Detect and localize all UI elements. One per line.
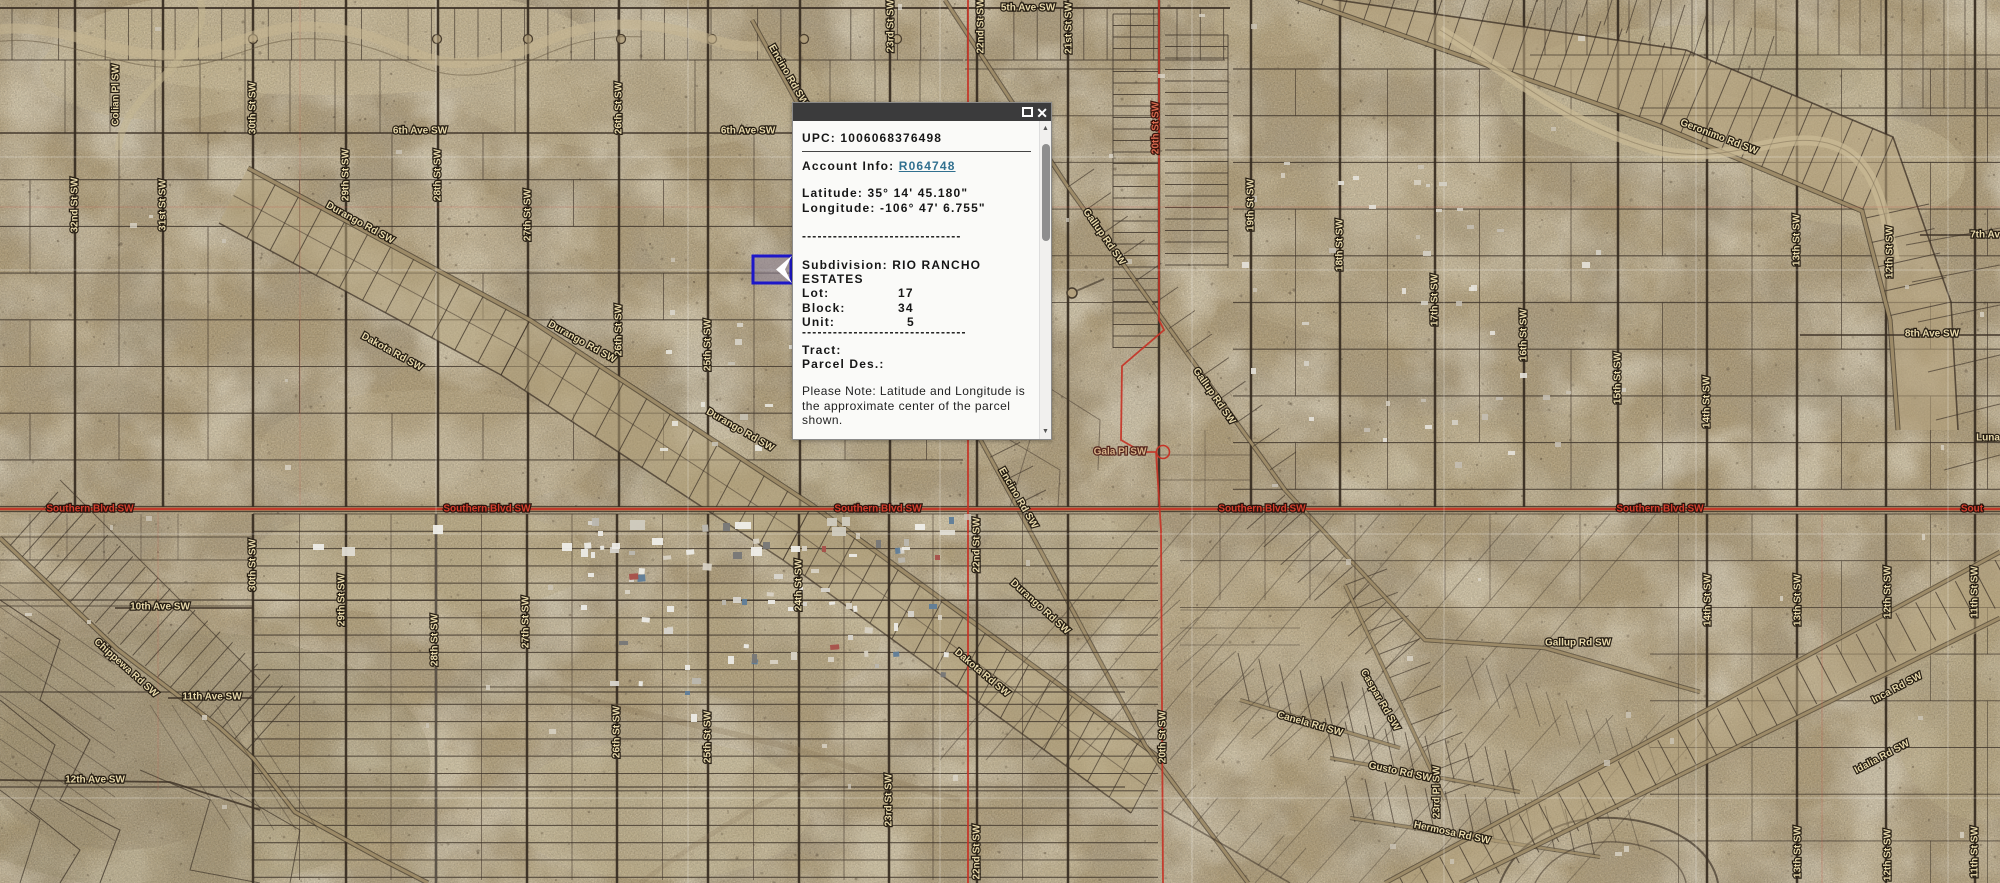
svg-text:8th Ave SW: 8th Ave SW bbox=[1905, 329, 1960, 340]
svg-text:18th St SW: 18th St SW bbox=[1335, 218, 1346, 271]
svg-text:29th St SW: 29th St SW bbox=[341, 148, 352, 201]
svg-text:28th St SW: 28th St SW bbox=[430, 613, 441, 666]
svg-text:26th St SW: 26th St SW bbox=[612, 705, 623, 758]
svg-text:27th St SW: 27th St SW bbox=[523, 188, 534, 241]
svg-text:29th St SW: 29th St SW bbox=[337, 573, 348, 626]
svg-text:6th Ave SW: 6th Ave SW bbox=[721, 126, 776, 137]
svg-text:32nd St SW: 32nd St SW bbox=[70, 177, 81, 233]
svg-text:Southern Blvd SW: Southern Blvd SW bbox=[1218, 504, 1306, 515]
svg-text:30th St SW: 30th St SW bbox=[248, 538, 259, 591]
svg-text:11th St SW: 11th St SW bbox=[1970, 826, 1981, 878]
svg-text:Southern Blvd SW: Southern Blvd SW bbox=[834, 504, 922, 515]
svg-text:30th St SW: 30th St SW bbox=[248, 81, 259, 134]
svg-text:26th St SW: 26th St SW bbox=[614, 81, 625, 134]
svg-text:6th Ave SW: 6th Ave SW bbox=[393, 126, 448, 137]
svg-text:12th St SW: 12th St SW bbox=[1883, 565, 1894, 618]
svg-text:20th St SW: 20th St SW bbox=[1151, 101, 1162, 154]
svg-text:22nd St SW: 22nd St SW bbox=[972, 824, 983, 880]
svg-text:15th St SW: 15th St SW bbox=[1613, 351, 1624, 404]
svg-text:12th Ave SW: 12th Ave SW bbox=[65, 775, 125, 786]
svg-text:7th Av: 7th Av bbox=[1970, 230, 2000, 241]
svg-text:22nd St SW: 22nd St SW bbox=[972, 517, 983, 573]
svg-text:22nd St SW: 22nd St SW bbox=[976, 0, 987, 54]
svg-text:17th St SW: 17th St SW bbox=[1430, 273, 1441, 326]
svg-text:Southern Blvd SW: Southern Blvd SW bbox=[443, 504, 531, 515]
svg-text:16th St SW: 16th St SW bbox=[1519, 308, 1530, 361]
svg-text:Southern Blvd SW: Southern Blvd SW bbox=[46, 504, 134, 515]
svg-text:26th St SW: 26th St SW bbox=[614, 303, 625, 356]
svg-text:13th St SW: 13th St SW bbox=[1793, 573, 1804, 626]
svg-text:Gallup Rd SW: Gallup Rd SW bbox=[1545, 638, 1612, 649]
svg-text:31st St SW: 31st St SW bbox=[158, 179, 169, 231]
svg-text:13th St SW: 13th St SW bbox=[1793, 825, 1804, 878]
svg-text:Gala Pl SW: Gala Pl SW bbox=[1094, 447, 1147, 458]
svg-text:19th St SW: 19th St SW bbox=[1246, 178, 1257, 231]
svg-text:27th St SW: 27th St SW bbox=[521, 595, 532, 648]
svg-text:Southern Blvd SW: Southern Blvd SW bbox=[1616, 504, 1704, 515]
svg-text:Luna: Luna bbox=[1976, 433, 2000, 444]
svg-text:Colian Pl SW: Colian Pl SW bbox=[111, 64, 122, 126]
svg-text:10th Ave SW: 10th Ave SW bbox=[130, 602, 190, 613]
svg-text:23rd St SW: 23rd St SW bbox=[884, 773, 895, 826]
svg-text:25th St SW: 25th St SW bbox=[703, 318, 714, 371]
svg-text:23rd Pl SW: 23rd Pl SW bbox=[1432, 765, 1443, 818]
svg-text:14th St SW: 14th St SW bbox=[1703, 573, 1714, 626]
svg-text:21st St SW: 21st St SW bbox=[1064, 2, 1075, 54]
svg-text:Sout: Sout bbox=[1961, 504, 1984, 515]
svg-text:20th St SW: 20th St SW bbox=[1158, 710, 1169, 763]
svg-text:12th St SW: 12th St SW bbox=[1885, 225, 1896, 278]
svg-text:28th St SW: 28th St SW bbox=[433, 148, 444, 201]
svg-text:11th Ave SW: 11th Ave SW bbox=[182, 692, 242, 703]
svg-text:11th St SW: 11th St SW bbox=[1970, 566, 1981, 618]
svg-text:13th St SW: 13th St SW bbox=[1792, 213, 1803, 266]
svg-text:12th St SW: 12th St SW bbox=[1883, 828, 1894, 881]
svg-text:23rd St SW: 23rd St SW bbox=[886, 0, 897, 52]
svg-text:14th St SW: 14th St SW bbox=[1702, 375, 1713, 428]
svg-text:24th St SW: 24th St SW bbox=[794, 558, 805, 611]
svg-text:5th Ave SW: 5th Ave SW bbox=[1001, 3, 1056, 14]
svg-text:25th St SW: 25th St SW bbox=[703, 710, 714, 763]
